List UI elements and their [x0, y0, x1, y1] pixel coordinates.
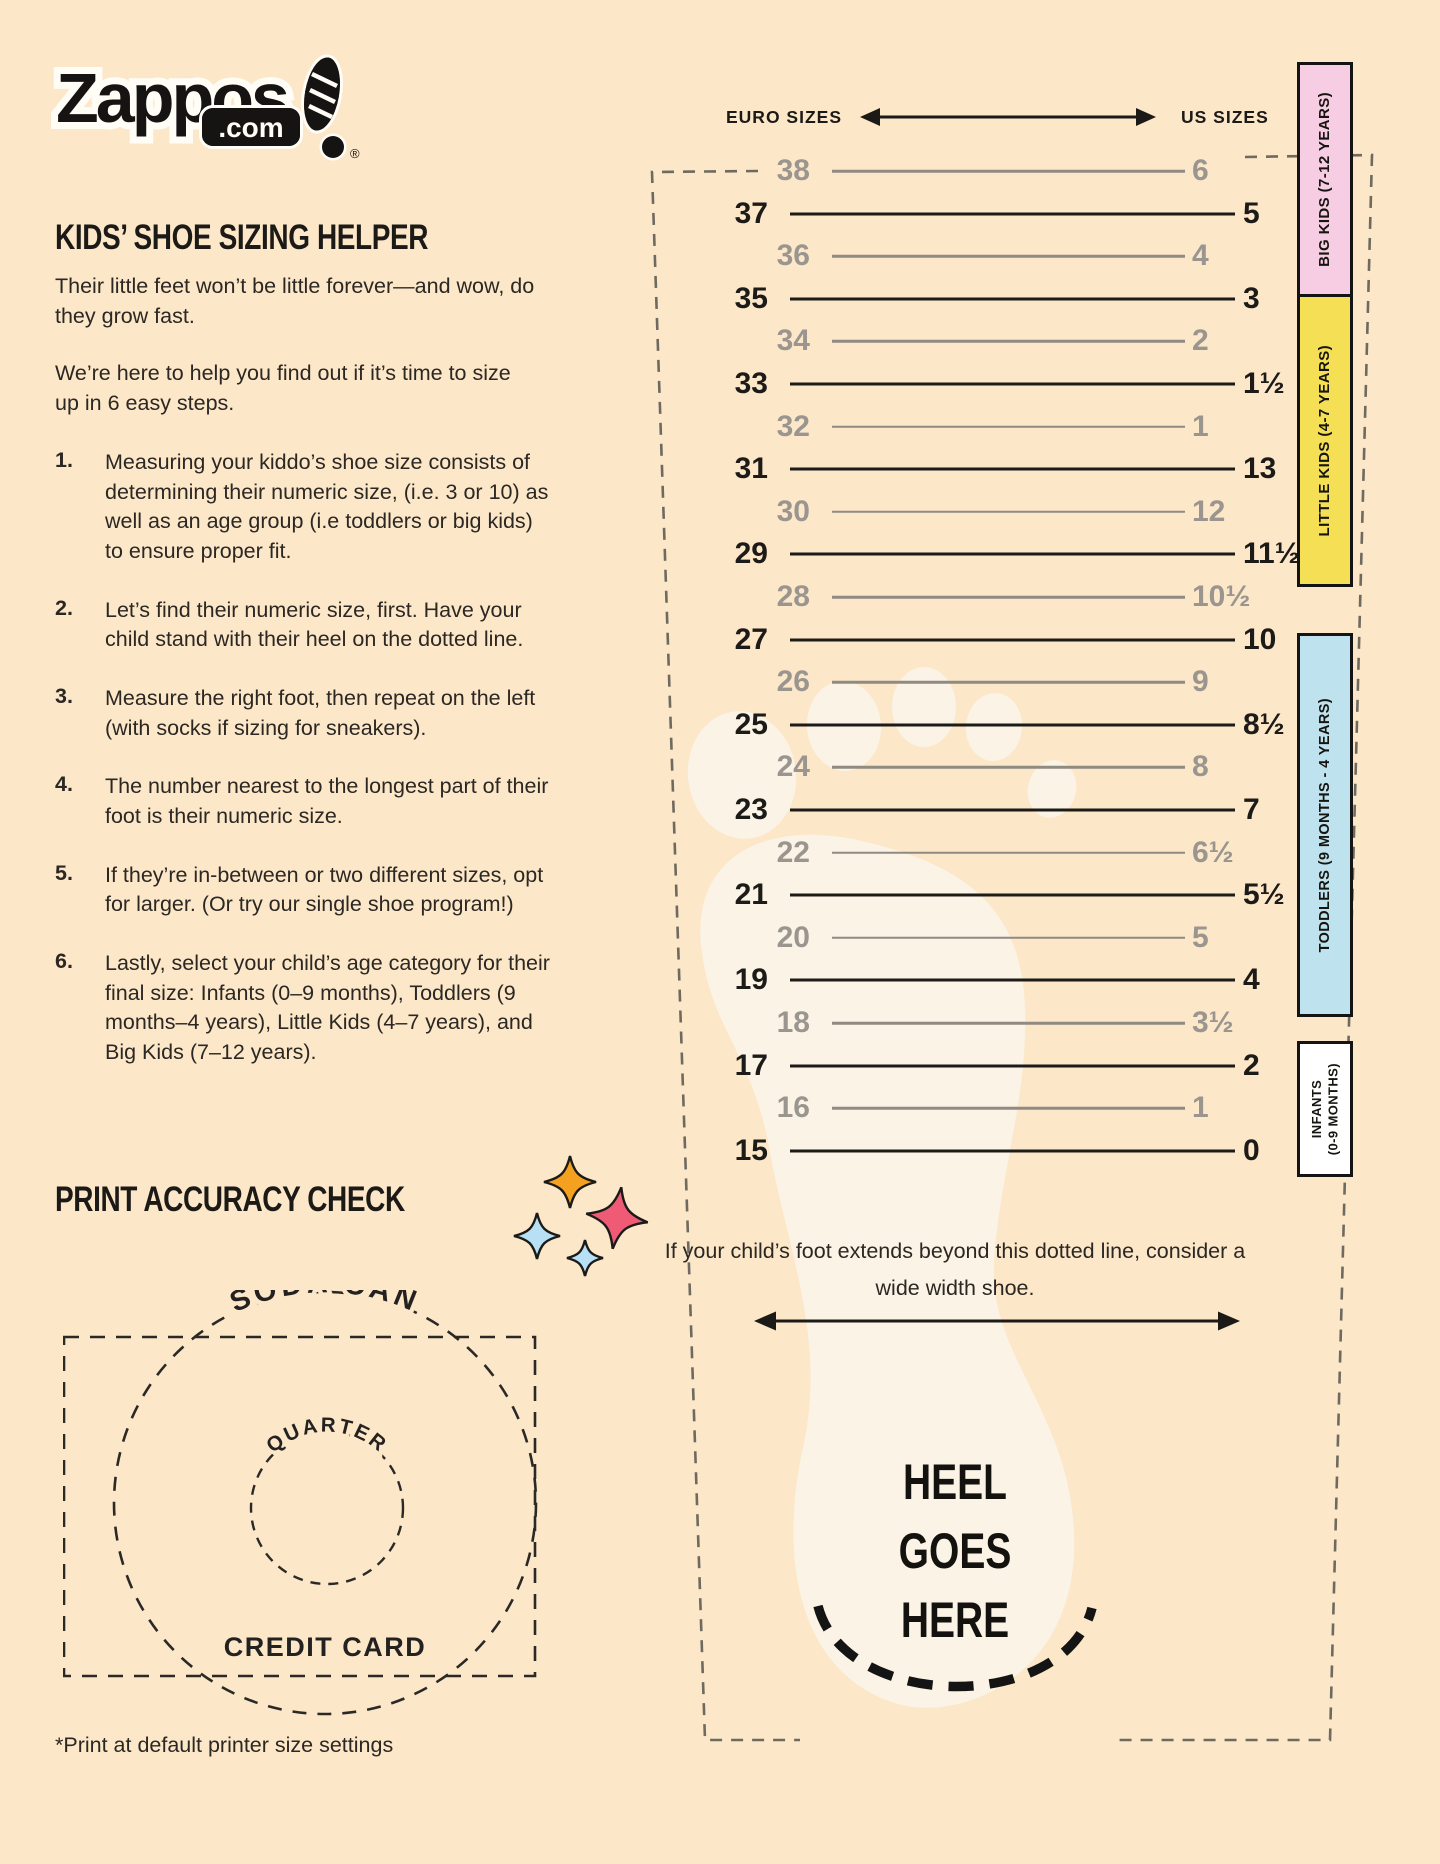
step-text: Measuring your kiddo’s shoe size consist… [105, 450, 548, 563]
euro-sizes-header: EURO SIZES [726, 103, 842, 131]
step-text: The number nearest to the longest part o… [105, 774, 548, 828]
size-row-line [832, 937, 1185, 940]
us-size-label: 7 [1243, 793, 1260, 827]
euro-size-label: 38 [777, 154, 810, 188]
size-row-line [832, 681, 1185, 684]
step-number: 1. [55, 448, 73, 473]
step-item: 4.The number nearest to the longest part… [55, 772, 555, 831]
us-size-label: 1 [1192, 1091, 1209, 1125]
heel-goes-here-label: HEELGOESHERE [775, 1448, 1135, 1655]
size-row-line [832, 596, 1185, 599]
us-size-label: 3 [1243, 282, 1260, 316]
size-row-line [790, 723, 1235, 726]
size-row-line [832, 170, 1185, 173]
steps-list: 1.Measuring your kiddo’s shoe size consi… [55, 448, 555, 1097]
age-band-little-kids: LITTLE KIDS (4-7 YEARS) [1297, 294, 1353, 587]
us-size-label: 3½ [1192, 1006, 1234, 1040]
us-size-label: 6½ [1192, 836, 1234, 870]
us-size-label: 11½ [1243, 537, 1300, 571]
us-size-label: 6 [1192, 154, 1209, 188]
euro-size-label: 20 [777, 921, 810, 955]
step-text: Let’s find their numeric size, first. Ha… [105, 598, 523, 652]
euro-size-label: 35 [735, 282, 768, 316]
size-row-line [832, 766, 1185, 769]
sparkle-blue-icon [514, 1213, 560, 1259]
print-accuracy-title: PRINT ACCURACY CHECK [55, 1180, 492, 1220]
size-row-line [790, 297, 1235, 300]
dot-com-label: .com [218, 112, 283, 143]
intro-paragraph: Their little feet won’t be little foreve… [55, 272, 535, 331]
size-row-line [790, 809, 1235, 812]
step-text: Lastly, select your child’s age category… [105, 951, 550, 1064]
age-band-toddlers: TODDLERS (9 MONTHS - 4 YEARS) [1297, 633, 1353, 1017]
sparkle-orange-icon [544, 1156, 596, 1208]
us-size-label: 2 [1192, 324, 1209, 358]
euro-size-label: 29 [735, 537, 768, 571]
age-band-label: LITTLE KIDS (4-7 YEARS) [1316, 345, 1335, 536]
us-size-label: 8 [1192, 750, 1209, 784]
euro-size-label: 32 [777, 410, 810, 444]
wide-width-note: If your child’s foot extends beyond this… [655, 1233, 1255, 1307]
size-row-line [832, 340, 1185, 343]
credit-card-outline [64, 1337, 535, 1676]
us-sizes-header: US SIZES [1181, 103, 1269, 131]
heel-word: HEEL [815, 1448, 1096, 1517]
euro-size-label: 25 [735, 708, 768, 742]
euro-size-label: 27 [735, 623, 768, 657]
euro-size-label: 15 [735, 1134, 768, 1168]
step-number: 4. [55, 772, 73, 797]
us-size-label: 5 [1243, 197, 1260, 231]
us-size-label: 12 [1192, 495, 1225, 529]
intro-paragraphs: Their little feet won’t be little foreve… [55, 272, 535, 447]
size-row-line [790, 212, 1235, 215]
us-size-label: 9 [1192, 665, 1209, 699]
sparkles-decoration [505, 1148, 680, 1293]
page-title: KIDS’ SHOE SIZING HELPER [55, 218, 521, 258]
size-row-line [832, 1022, 1185, 1025]
euro-size-label: 18 [777, 1006, 810, 1040]
size-row-line [832, 255, 1185, 258]
wide-width-double-arrow-icon [752, 1306, 1242, 1336]
euro-size-label: 19 [735, 963, 768, 997]
euro-size-label: 37 [735, 197, 768, 231]
euro-size-label: 33 [735, 367, 768, 401]
euro-size-label: 24 [777, 750, 810, 784]
size-row-line [790, 553, 1235, 556]
us-size-label: 1 [1192, 410, 1209, 444]
size-row-line [790, 1064, 1235, 1067]
heel-word: GOES [815, 1517, 1096, 1586]
step-number: 5. [55, 861, 73, 886]
step-item: 6.Lastly, select your child’s age catego… [55, 949, 555, 1068]
euro-size-label: 28 [777, 580, 810, 614]
age-band-label: TODDLERS (9 MONTHS - 4 YEARS) [1316, 698, 1334, 952]
us-size-label: 8½ [1243, 708, 1285, 742]
heel-word: HERE [815, 1586, 1096, 1655]
page: Zappos .com ® KIDS’ SHOE SIZING HELPER [0, 0, 1440, 1864]
shoe-exclamation-icon [299, 55, 345, 158]
us-size-label: 0 [1243, 1134, 1260, 1168]
us-size-label: 5 [1192, 921, 1209, 955]
step-text: Measure the right foot, then repeat on t… [105, 686, 535, 740]
us-size-label: 4 [1192, 239, 1209, 273]
us-size-label: 13 [1243, 452, 1276, 486]
step-item: 2.Let’s find their numeric size, first. … [55, 596, 555, 655]
age-band-big-kids: BIG KIDS (7-12 YEARS) [1297, 62, 1353, 297]
euro-size-label: 23 [735, 793, 768, 827]
size-row-line [790, 468, 1235, 471]
print-accuracy-diagram: SODA CAN QUARTER CREDIT CARD [63, 1290, 608, 1730]
us-size-label: 10 [1243, 623, 1276, 657]
euro-size-label: 16 [777, 1091, 810, 1125]
euro-size-label: 34 [777, 324, 810, 358]
age-band-label: BIG KIDS (7-12 YEARS) [1316, 92, 1335, 267]
age-band-infants: INFANTS (0-9 MONTHS) [1297, 1041, 1353, 1177]
euro-size-label: 36 [777, 239, 810, 273]
size-row-line [832, 511, 1185, 514]
size-row-line [832, 851, 1185, 854]
step-number: 3. [55, 684, 73, 709]
size-row-line [790, 1149, 1235, 1152]
euro-size-label: 21 [735, 878, 768, 912]
sparkle-blue-small-icon [567, 1240, 603, 1276]
registered-mark: ® [350, 146, 360, 161]
step-text: If they’re in-between or two different s… [105, 863, 543, 917]
us-size-label: 10½ [1192, 580, 1250, 614]
us-size-label: 1½ [1243, 367, 1285, 401]
step-number: 2. [55, 596, 73, 621]
sizes-double-arrow-icon [858, 103, 1158, 131]
euro-size-label: 17 [735, 1049, 768, 1083]
euro-size-label: 31 [735, 452, 768, 486]
age-band-label: INFANTS (0-9 MONTHS) [1309, 1063, 1342, 1155]
zappos-logo: Zappos .com ® [50, 46, 380, 166]
soda-can-label: SODA CAN [226, 1290, 425, 1319]
euro-size-label: 30 [777, 495, 810, 529]
step-item: 3.Measure the right foot, then repeat on… [55, 684, 555, 743]
credit-card-label: CREDIT CARD [224, 1632, 427, 1662]
us-size-label: 2 [1243, 1049, 1260, 1083]
print-settings-footnote: *Print at default printer size settings [55, 1733, 393, 1758]
us-size-label: 4 [1243, 963, 1260, 997]
euro-size-label: 26 [777, 665, 810, 699]
step-item: 1.Measuring your kiddo’s shoe size consi… [55, 448, 555, 567]
dot-com-badge: .com [202, 108, 300, 146]
intro-paragraph: We’re here to help you find out if it’s … [55, 359, 535, 418]
size-row-line [790, 979, 1235, 982]
quarter-outline [251, 1432, 403, 1584]
sparkle-pink-icon [582, 1183, 652, 1253]
us-size-label: 5½ [1243, 878, 1285, 912]
size-row-line [790, 638, 1235, 641]
size-row-line [790, 383, 1235, 386]
euro-size-label: 22 [777, 836, 810, 870]
step-number: 6. [55, 949, 73, 974]
step-item: 5.If they’re in-between or two different… [55, 861, 555, 920]
size-row-line [832, 1107, 1185, 1110]
quarter-label: QUARTER [262, 1413, 392, 1457]
size-row-line [790, 894, 1235, 897]
size-row-line [832, 425, 1185, 428]
